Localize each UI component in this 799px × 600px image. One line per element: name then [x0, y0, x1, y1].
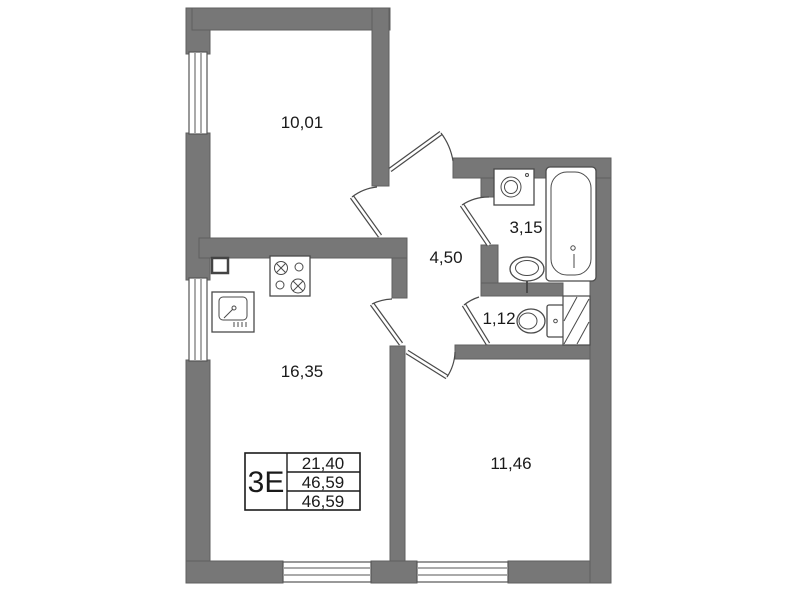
kitchen-door: [372, 299, 401, 344]
window-left-bottom: [189, 278, 207, 361]
door-swing-arc: [372, 299, 392, 304]
toilet-icon: [517, 305, 564, 337]
room-right-door: [407, 352, 455, 377]
washing-machine-icon: [494, 169, 534, 205]
stove-icon: [270, 256, 310, 296]
wall-segment: [199, 238, 407, 258]
door-swing-arc: [441, 133, 453, 161]
wall-segment: [371, 561, 417, 583]
spec-value-total: 46,59: [302, 492, 345, 511]
wall-segment: [481, 245, 498, 285]
floor-plan-page: 10,01 4,50 3,15 1,12 16,35 11,46 3Е 21,4…: [0, 0, 799, 600]
room-top-area-label: 10,01: [281, 113, 324, 132]
door-swing-arc: [447, 352, 455, 377]
door-swing-arc: [462, 197, 489, 205]
wall-segment: [186, 360, 210, 583]
spec-table: 3Е 21,40 46,59 46,59: [245, 453, 360, 511]
room-top-door: [352, 187, 380, 236]
entrance-door: [390, 133, 453, 170]
floor-plan-drawing: 10,01 4,50 3,15 1,12 16,35 11,46 3Е 21,4…: [0, 0, 799, 600]
ventilation-shaft-icon: [563, 296, 590, 345]
wall-segment: [372, 8, 389, 186]
wall-segment: [192, 8, 390, 30]
kitchen-area-label: 16,35: [281, 362, 324, 381]
wall-segment: [390, 346, 405, 561]
door-swing-arc: [352, 187, 377, 197]
spec-value-living: 21,40: [302, 454, 345, 473]
bathtub-icon: [546, 167, 596, 281]
apartment-type-label: 3Е: [248, 466, 285, 499]
wc-area-label: 1,12: [482, 309, 515, 328]
column: [212, 258, 228, 273]
wall-segment: [455, 345, 590, 359]
wall-segment: [392, 258, 407, 298]
bathroom-door: [462, 197, 489, 245]
door-swing-arc: [464, 297, 479, 305]
window-bottom-right: [417, 562, 508, 582]
room-right-area-label: 11,46: [490, 454, 531, 473]
wall-segment: [186, 561, 283, 583]
window-left-top: [189, 52, 207, 134]
wall-segment: [481, 283, 563, 296]
hallway-area-label: 4,50: [429, 248, 462, 267]
window-bottom-left: [283, 562, 371, 582]
spec-value-area: 46,59: [302, 473, 345, 492]
kitchen-sink-icon: [212, 292, 254, 332]
bathroom-area-label: 3,15: [509, 218, 542, 237]
